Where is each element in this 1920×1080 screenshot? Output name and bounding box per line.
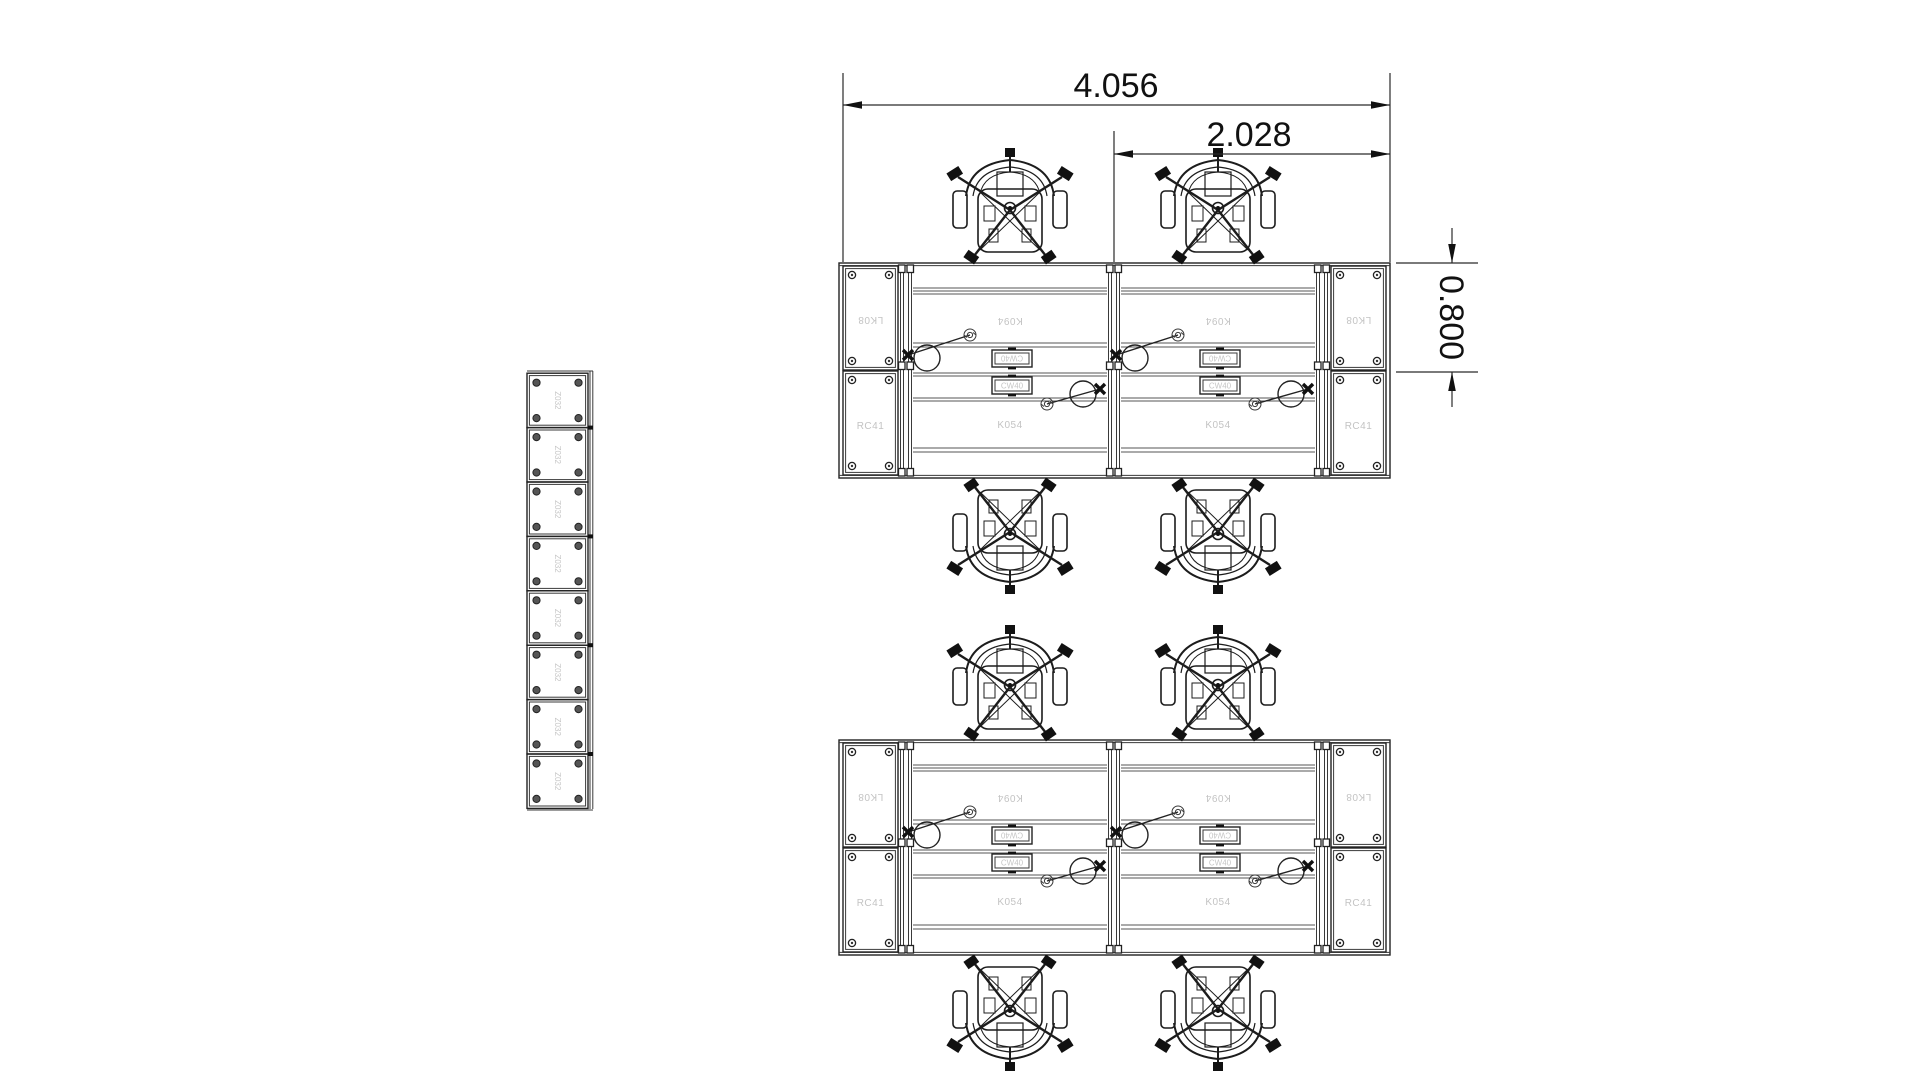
dimension-label-half: 2.028 — [1206, 116, 1291, 154]
dimension-desk-depth: 0.800 — [1396, 228, 1478, 407]
dimension-label-depth: 0.800 — [1432, 275, 1470, 360]
dimension-overall-width: 4.056 — [843, 67, 1390, 262]
floorplan-canvas: K094 K054 CW40 CW40 — [0, 0, 1920, 1080]
dimension-label-overall: 4.056 — [1073, 67, 1158, 105]
lower-desk-cluster — [839, 625, 1390, 1071]
locker-column — [527, 371, 593, 810]
